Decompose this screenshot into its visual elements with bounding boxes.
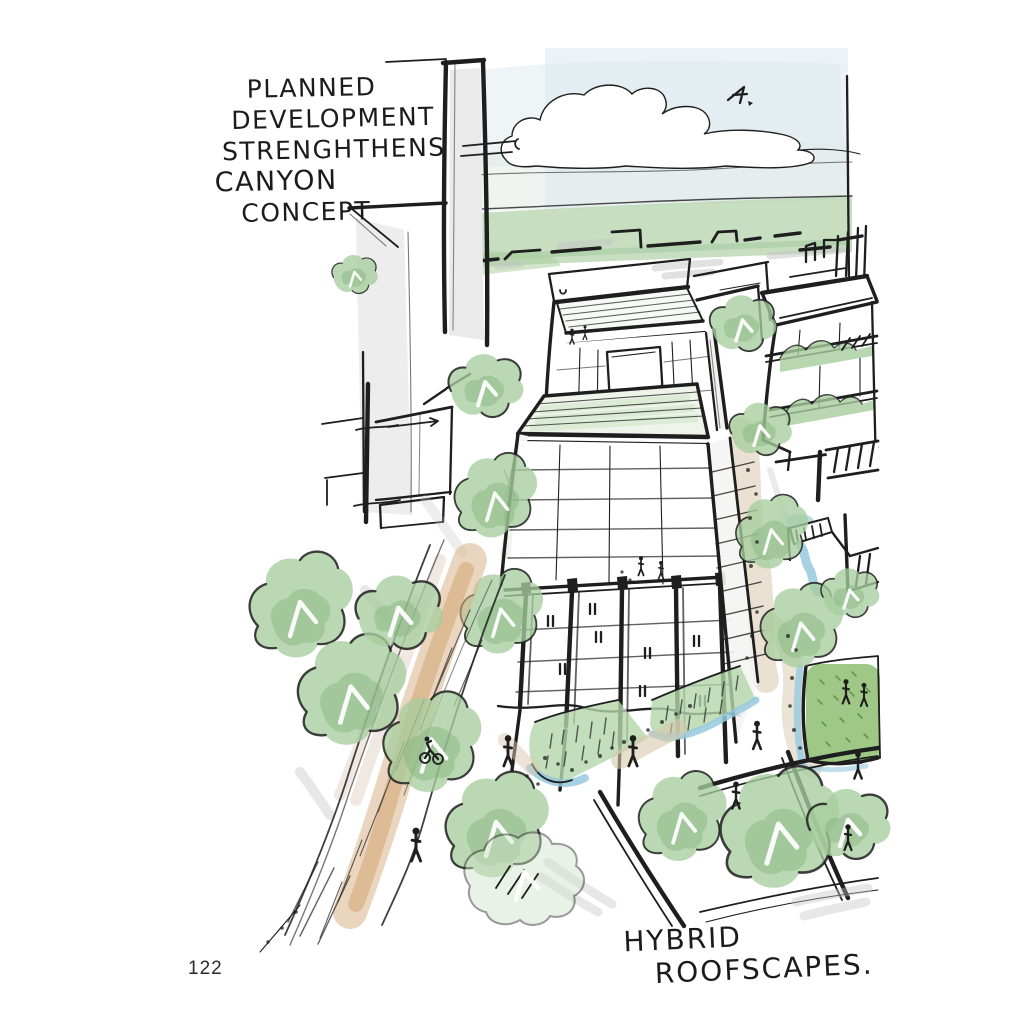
annotation-planned-development: PLANNED DEVELOPMENT STRENGHTHENS CANYON …	[212, 70, 447, 230]
annotation-line: CONCEPT	[215, 194, 447, 230]
left-buildings	[322, 203, 470, 552]
annotation-line: PLANNED	[212, 70, 444, 106]
annotation-hybrid-roofscapes: HYBRID ROOFSCAPES.	[623, 915, 875, 992]
book-page: PLANNED DEVELOPMENT STRENGHTHENS CANYON …	[0, 0, 1024, 1024]
sketch-illustration	[0, 0, 1024, 1024]
page-number: 122	[188, 958, 223, 980]
annotation-line: DEVELOPMENT	[213, 101, 445, 137]
annotation-line: STRENGHTHENS	[214, 132, 446, 168]
annotation-line: CANYON	[214, 163, 446, 199]
